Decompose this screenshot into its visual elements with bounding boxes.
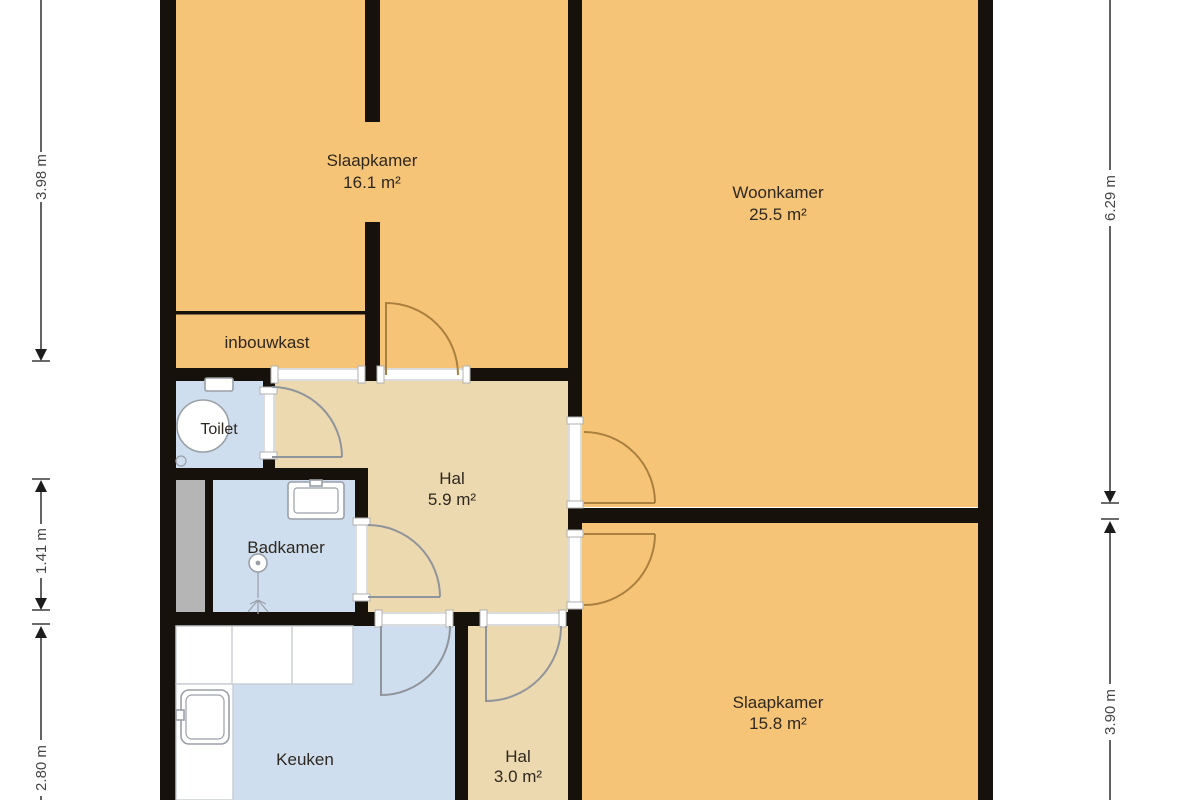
toilet-cistern-icon [205, 378, 233, 391]
opening-badkamer [356, 522, 367, 598]
label-hal-2-area: 3.0 m² [494, 767, 543, 786]
room-woonkamer-floor [582, 0, 978, 507]
wall-woonkamer-slaapkamer2 [582, 508, 978, 523]
outer-wall-right [978, 0, 993, 800]
dimension-right-2: 3.90 m [1101, 519, 1119, 800]
partition-stub-bottom [365, 222, 380, 381]
opening-slaapkamer-2 [569, 533, 581, 606]
room-hal-1-floor-notch [275, 381, 368, 468]
label-hal-2-name: Hal [505, 747, 531, 766]
label-hal-1-area: 5.9 m² [428, 490, 477, 509]
opening-hal-2 [483, 613, 563, 625]
outer-wall-left [160, 0, 176, 800]
wall-keuken-top-mid [450, 612, 483, 626]
label-keuken: Keuken [276, 750, 334, 769]
wall-keuken-top-left [160, 612, 378, 626]
floor-plan: Slaapkamer 16.1 m² Woonkamer 25.5 m² inb… [0, 0, 1200, 800]
dimension-right-2-label: 3.90 m [1102, 689, 1119, 735]
label-badkamer: Badkamer [247, 538, 325, 557]
kitchen-tap-icon [176, 710, 184, 720]
shaft-area [176, 480, 205, 612]
wall-keuken-hal2 [455, 626, 468, 800]
wall-badkamer-right-upper [355, 480, 368, 522]
kitchen-counter-top [176, 626, 353, 684]
dimension-left-3: 2.80 m [32, 624, 50, 800]
opening-keuken [378, 613, 450, 625]
inbouwkast-front-line [176, 311, 366, 315]
label-slaapkamer-1-area: 16.1 m² [343, 173, 401, 192]
wall-center-vertical-mid [568, 505, 582, 533]
label-slaapkamer-2-area: 15.8 m² [749, 714, 807, 733]
opening-slaapkamer-1 [380, 369, 467, 380]
opening-inbouwkast [275, 369, 362, 380]
wall-badkamer-top [160, 468, 368, 480]
label-slaapkamer-1-name: Slaapkamer [327, 151, 418, 170]
dimension-right-1-label: 6.29 m [1102, 175, 1119, 221]
room-slaapkamer-2-floor [582, 522, 978, 800]
dimension-left-3-label: 2.80 m [33, 745, 50, 791]
kitchen-sink-icon [181, 690, 229, 744]
label-slaapkamer-2-name: Slaapkamer [733, 693, 824, 712]
dimension-left-1-label: 3.98 m [33, 154, 50, 200]
partition-stub-top [365, 0, 380, 122]
wall-center-vertical-upper [568, 0, 582, 420]
label-woonkamer-name: Woonkamer [732, 183, 824, 202]
dimension-left-1: 3.98 m [32, 0, 50, 361]
opening-toilet [264, 390, 274, 456]
dimension-left-2: 1.41 m [32, 479, 50, 610]
wall-hal-top-right [467, 368, 582, 381]
dimension-left-2-label: 1.41 m [33, 528, 50, 574]
dimension-right-1: 6.29 m [1101, 0, 1119, 503]
wall-center-vertical-lower [568, 606, 582, 800]
wall-shaft [205, 480, 213, 612]
label-hal-1-name: Hal [439, 469, 465, 488]
label-woonkamer-area: 25.5 m² [749, 205, 807, 224]
label-inbouwkast: inbouwkast [224, 333, 309, 352]
shower-head-dot [256, 561, 261, 566]
badkamer-tap-icon [310, 480, 322, 486]
opening-woonkamer [569, 420, 581, 505]
label-toilet: Toilet [200, 421, 238, 438]
